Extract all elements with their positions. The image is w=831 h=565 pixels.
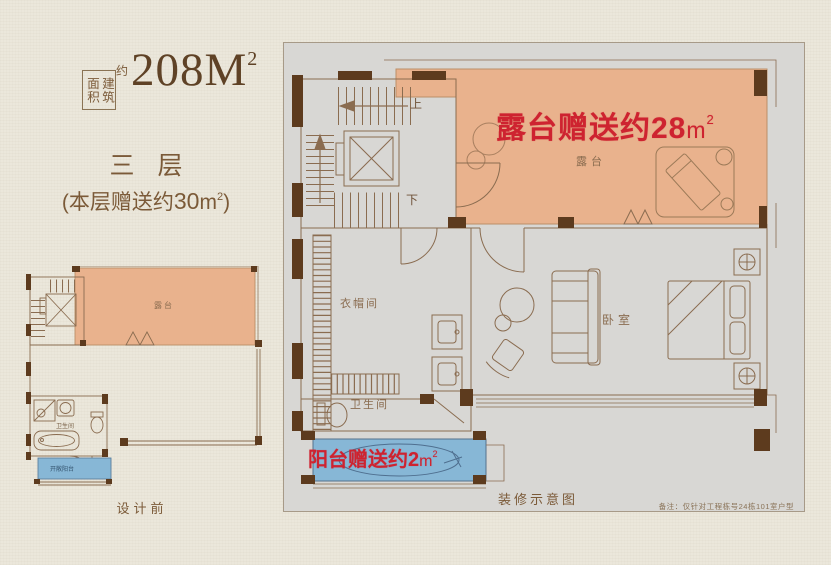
cloakroom-label: 衣帽间	[340, 295, 379, 311]
small-balcony-label: 开敞阳台	[50, 464, 74, 473]
bonus-close-paren: )	[223, 191, 230, 214]
terrace-bonus-banner: 露台赠送约28m2	[496, 103, 715, 147]
floor-bonus-line: (本层赠送约30m2)	[26, 186, 266, 216]
stairs-down-label: 下	[406, 191, 418, 208]
terrace-banner-value: 28	[651, 112, 686, 145]
plan-note: 备注：仅针对工程栋号24栋101室户型	[659, 501, 794, 512]
terrace-banner-superscript: 2	[707, 112, 715, 127]
bed-icon	[668, 281, 750, 359]
small-bathroom-label: 卫生间	[56, 421, 74, 430]
bonus-value: 30	[174, 188, 200, 214]
terrace-banner-text: 露台赠送约	[496, 112, 651, 145]
small-balcony-area	[38, 458, 111, 479]
sofa-icon	[552, 269, 600, 365]
elevator-icon	[336, 131, 399, 186]
bonus-open-paren: (	[62, 191, 69, 214]
small-floor-plan-drawing	[26, 266, 266, 491]
bedroom-label: 卧室	[602, 311, 634, 328]
area-label-box: 建筑面积	[82, 70, 116, 110]
area-number-text: 208	[131, 44, 205, 96]
floor-title: 三 层	[60, 146, 240, 182]
balcony-banner-text: 阳台赠送约	[308, 449, 408, 471]
stairs-up-label: 上	[410, 95, 422, 112]
floor-plan-page: 建筑面积 约 208M2 三 层 (本层赠送约30m2)	[0, 0, 831, 565]
before-design-caption: 设计前	[96, 498, 188, 517]
area-unit: M	[205, 44, 248, 96]
stairwell	[301, 79, 456, 228]
terrace-banner-unit: m	[686, 117, 706, 143]
area-approx-label: 约	[116, 62, 128, 79]
balcony-banner-value: 2	[408, 449, 419, 471]
bonus-text: 本层赠送约	[69, 191, 174, 214]
chair-icon	[485, 337, 526, 380]
small-floor-plan: 露台 卫生间 开敞阳台	[26, 266, 266, 491]
small-terrace-label: 露台	[154, 300, 174, 311]
decorated-plan-caption: 装修示意图	[468, 489, 608, 508]
bonus-unit: m	[199, 191, 217, 214]
area-superscript: 2	[247, 48, 257, 70]
balcony-bonus-banner: 阳台赠送约2m2	[308, 443, 437, 472]
vanity-sinks-icon	[432, 315, 462, 391]
balcony-banner-superscript: 2	[432, 449, 437, 459]
main-plan-panel: 上 下 露台 衣帽间 卫生间 卧室 露台赠送约28m2 阳台赠送约2m2 装修示…	[283, 42, 805, 512]
bathroom-label: 卫生间	[350, 396, 389, 412]
side-table-icon	[495, 288, 534, 331]
total-area-value: 208M2	[131, 46, 257, 95]
nightstand-icon	[734, 249, 760, 389]
balcony-banner-unit: m	[419, 453, 432, 470]
terrace-label: 露台	[576, 153, 606, 169]
